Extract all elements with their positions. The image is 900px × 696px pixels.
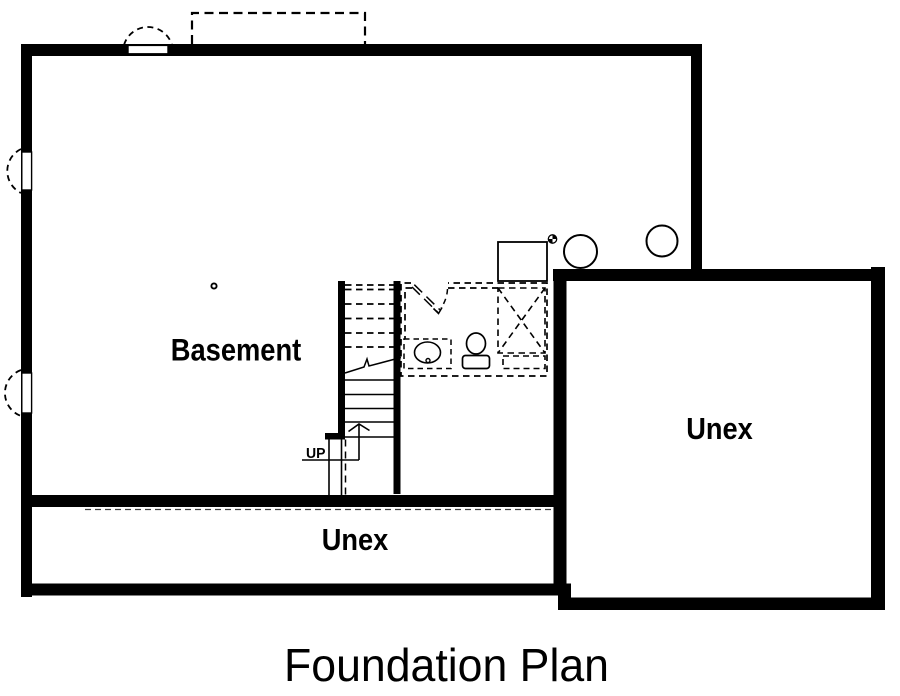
svg-text:Basement: Basement [171, 333, 302, 368]
svg-text:Foundation Plan: Foundation Plan [284, 639, 609, 691]
svg-text:Unex: Unex [686, 412, 753, 446]
svg-text:Unex: Unex [322, 523, 389, 557]
